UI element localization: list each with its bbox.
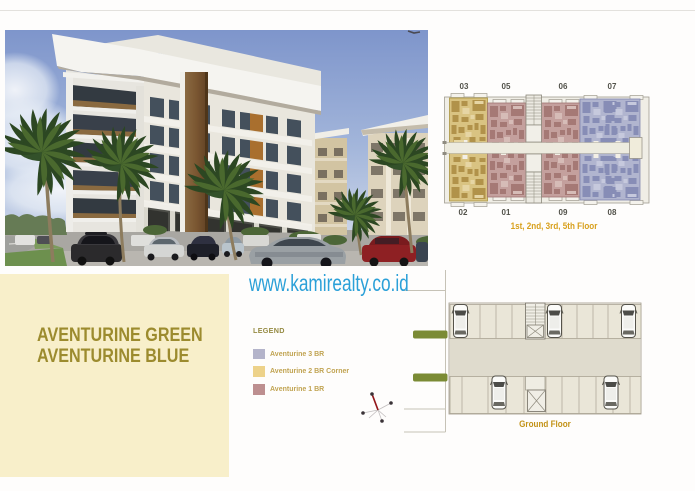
- svg-text:08: 08: [608, 208, 617, 217]
- svg-text:05: 05: [502, 82, 511, 91]
- svg-text:07: 07: [608, 82, 617, 91]
- svg-text:01: 01: [502, 208, 511, 217]
- svg-text:09: 09: [559, 208, 568, 217]
- svg-text:02: 02: [459, 208, 468, 217]
- svg-text:06: 06: [559, 82, 568, 91]
- svg-text:03: 03: [460, 82, 469, 91]
